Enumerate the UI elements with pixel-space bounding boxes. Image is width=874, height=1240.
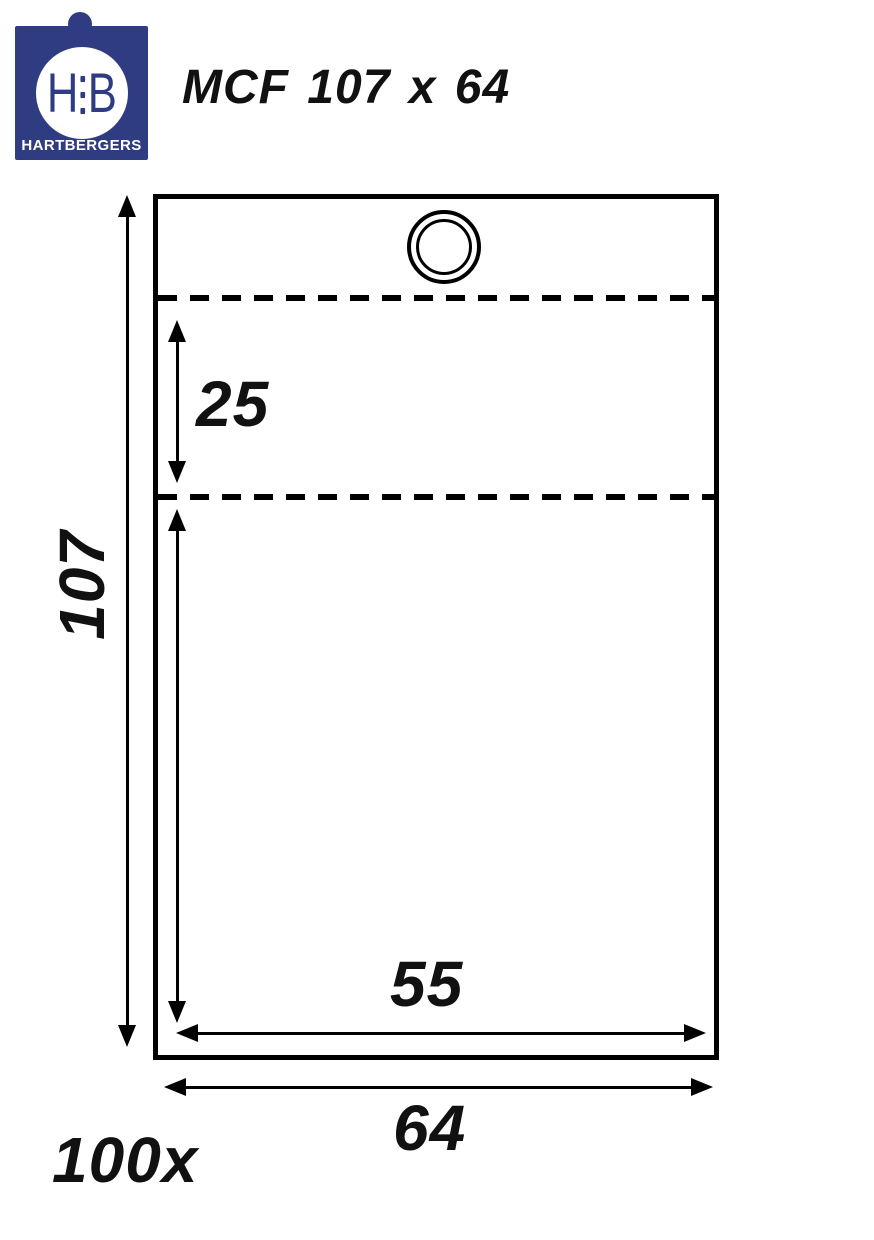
logo-square: H B HARTBERGERS xyxy=(15,26,148,160)
logo-monogram: H B xyxy=(47,65,117,121)
bag-outline xyxy=(153,194,719,1060)
flap-fold-dashline-bottom xyxy=(158,494,714,500)
dim-label-total-height: 107 xyxy=(50,520,114,650)
monogram-letter-b: B xyxy=(88,65,117,121)
flap-fold-dashline-top xyxy=(158,295,714,301)
logo-brand-text: HARTBERGERS xyxy=(15,137,148,154)
product-spec-sheet: H B HARTBERGERS MCF 107 x 64 xyxy=(0,0,874,1240)
monogram-letter-h: H xyxy=(47,65,79,121)
logo-circle: H B xyxy=(36,47,128,139)
dim-label-total-width: 64 xyxy=(393,1096,466,1160)
product-title: MCF 107 x 64 xyxy=(182,60,510,115)
dim-label-flap-height: 25 xyxy=(196,372,269,436)
quantity-label: 100x xyxy=(52,1128,198,1192)
dim-label-inner-width: 55 xyxy=(390,952,463,1016)
monogram-dots-icon xyxy=(81,73,86,114)
hang-hole-inner-ring xyxy=(416,219,472,275)
